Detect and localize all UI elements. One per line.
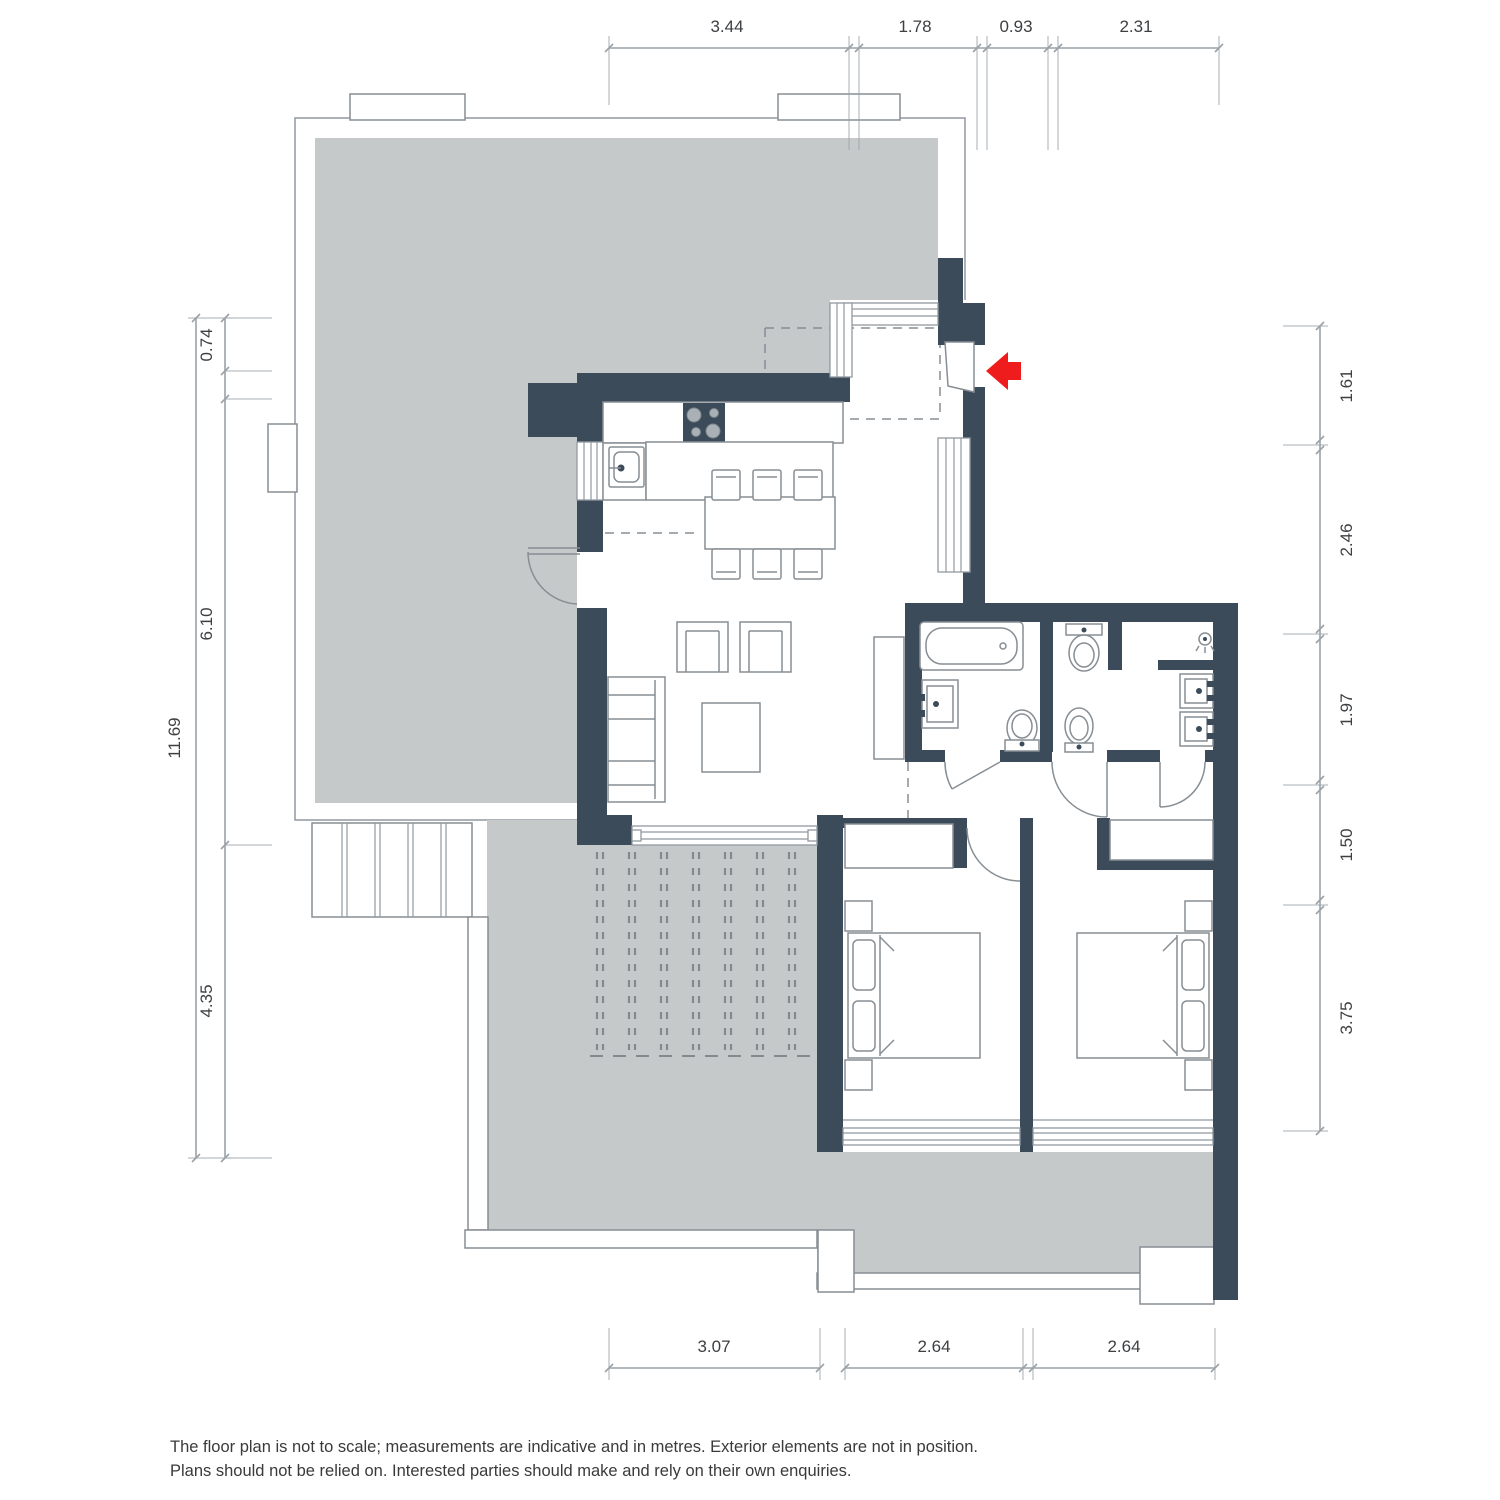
basin <box>918 680 958 728</box>
footer-line-2: Plans should not be relied on. Intereste… <box>170 1462 852 1480</box>
dining-chair <box>753 549 781 579</box>
dim-top-3: 0.93 <box>999 17 1032 36</box>
dim-right-4: 1.50 <box>1337 828 1356 861</box>
chimney-block <box>268 424 297 492</box>
dining-set <box>705 470 835 579</box>
armchair <box>677 622 728 672</box>
entrance-arrow-icon <box>986 352 1021 390</box>
dim-top-4: 2.31 <box>1119 17 1152 36</box>
floor-plan-page: 3.44 1.78 0.93 2.31 11.69 0.74 6.10 4.35… <box>0 0 1500 1500</box>
armchair <box>740 622 791 672</box>
bidet <box>1065 708 1093 752</box>
dining-chair <box>753 470 781 500</box>
dim-right-3: 1.97 <box>1337 693 1356 726</box>
dim-right-5: 3.75 <box>1337 1001 1356 1034</box>
entrance-door <box>945 342 974 392</box>
sofa <box>608 677 665 802</box>
dim-bottom-1: 3.07 <box>697 1337 730 1356</box>
toilet <box>1005 710 1039 751</box>
kitchen-west-window <box>577 442 603 500</box>
bathtub <box>920 622 1023 670</box>
nightstand <box>1185 901 1212 931</box>
terrace-steps <box>312 823 472 917</box>
coffee-table <box>702 703 760 772</box>
planter-top-right <box>778 94 900 120</box>
planter-bottom-right <box>1140 1247 1214 1304</box>
footer-line-1: The floor plan is not to scale; measurem… <box>170 1438 978 1456</box>
planter-bottom-center <box>818 1230 854 1292</box>
double-bed <box>848 933 980 1058</box>
dim-bottom-2: 2.64 <box>917 1337 950 1356</box>
wardrobe <box>845 824 953 868</box>
dim-right-1: 1.61 <box>1337 369 1356 402</box>
vanity-basin <box>1180 712 1214 746</box>
vanity-basin <box>1180 674 1214 708</box>
terrace-edge-left <box>468 917 488 1230</box>
nightstand <box>845 901 872 931</box>
dim-left-3: 4.35 <box>197 984 216 1017</box>
living-sliding-door <box>632 826 817 845</box>
toilet <box>1066 624 1102 671</box>
dimension-right: 1.61 2.46 1.97 1.50 3.75 <box>1283 322 1356 1135</box>
footer-note: The floor plan is not to scale; measurem… <box>170 1438 978 1480</box>
dim-left-2: 6.10 <box>197 607 216 640</box>
hob <box>683 403 725 443</box>
dining-chair <box>712 549 740 579</box>
dining-chair <box>794 549 822 579</box>
console-table <box>874 637 904 759</box>
floor-plan-canvas: 3.44 1.78 0.93 2.31 11.69 0.74 6.10 4.35… <box>0 0 1500 1500</box>
double-bed <box>1077 933 1209 1058</box>
dining-chair <box>712 470 740 500</box>
dining-chair <box>794 470 822 500</box>
dim-top-1: 3.44 <box>710 17 743 36</box>
nightstand <box>1185 1060 1212 1090</box>
dim-left-1: 0.74 <box>197 328 216 361</box>
dining-table <box>705 497 835 549</box>
closet <box>1110 820 1213 860</box>
dim-right-2: 2.46 <box>1337 523 1356 556</box>
dining-east-window <box>938 438 970 572</box>
dim-bottom-3: 2.64 <box>1107 1337 1140 1356</box>
dimension-bottom: 3.07 2.64 2.64 <box>605 1328 1219 1380</box>
kitchen-sink <box>609 447 644 487</box>
nightstand <box>845 1060 872 1090</box>
terrace-edge-bottom <box>465 1230 817 1248</box>
dim-left-overall: 11.69 <box>165 717 184 758</box>
dim-top-2: 1.78 <box>898 17 931 36</box>
dimension-left: 11.69 0.74 6.10 4.35 <box>165 314 272 1162</box>
planter-top-left <box>350 94 465 120</box>
